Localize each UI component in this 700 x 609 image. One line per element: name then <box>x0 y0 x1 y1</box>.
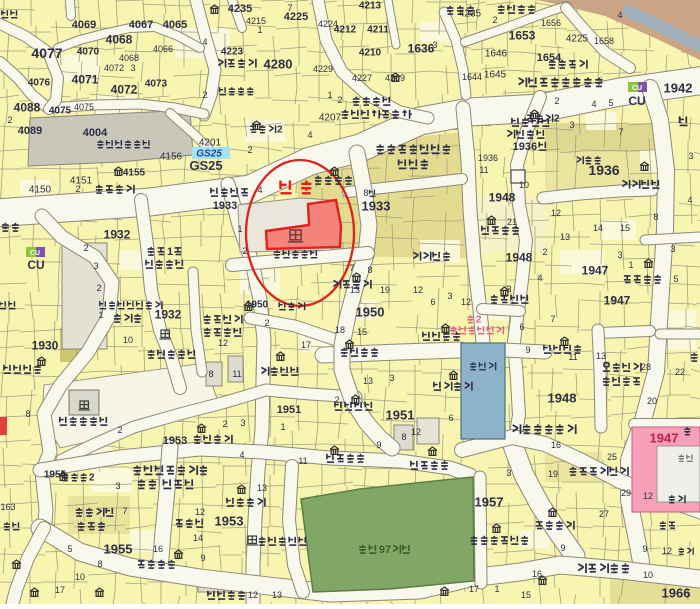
svg-text:4: 4 <box>591 99 596 109</box>
svg-text:6: 6 <box>430 297 435 307</box>
svg-text:6: 6 <box>448 413 453 423</box>
svg-text:13: 13 <box>272 590 282 600</box>
svg-text:1948: 1948 <box>506 250 533 264</box>
svg-text:13: 13 <box>350 285 360 295</box>
svg-text:15: 15 <box>357 327 367 337</box>
svg-text:8: 8 <box>97 559 102 569</box>
svg-text:2: 2 <box>542 247 547 257</box>
svg-text:1: 1 <box>98 310 103 320</box>
svg-text:3: 3 <box>688 151 693 161</box>
svg-text:4068: 4068 <box>119 53 139 63</box>
svg-text:9: 9 <box>200 553 205 563</box>
svg-text:4073: 4073 <box>145 79 168 90</box>
svg-text:9: 9 <box>376 440 381 450</box>
svg-text:1947: 1947 <box>604 293 631 307</box>
svg-text:CU: CU <box>30 250 40 257</box>
svg-text:12: 12 <box>248 590 258 600</box>
svg-text:3: 3 <box>447 291 452 301</box>
svg-text:2: 2 <box>264 318 269 328</box>
svg-text:7: 7 <box>618 127 623 137</box>
svg-text:17: 17 <box>55 585 65 595</box>
svg-text:4213: 4213 <box>359 1 382 12</box>
svg-text:4068: 4068 <box>106 32 133 46</box>
svg-text:1932: 1932 <box>104 227 131 241</box>
svg-text:1950: 1950 <box>356 305 385 320</box>
svg-text:4066: 4066 <box>153 44 173 54</box>
svg-text:1966: 1966 <box>662 586 691 601</box>
svg-text:12: 12 <box>643 491 653 501</box>
svg-text:2: 2 <box>247 145 252 155</box>
svg-text:10: 10 <box>75 572 85 582</box>
svg-text:1947: 1947 <box>582 263 609 277</box>
svg-text:12: 12 <box>461 297 471 307</box>
svg-text:19: 19 <box>548 469 558 479</box>
svg-text:18: 18 <box>335 325 345 335</box>
svg-text:4076: 4076 <box>28 78 51 89</box>
svg-text:12: 12 <box>195 507 205 517</box>
svg-text:12: 12 <box>551 208 561 218</box>
svg-text:11: 11 <box>568 352 577 362</box>
svg-text:12: 12 <box>413 285 423 295</box>
svg-text:1656: 1656 <box>541 18 561 28</box>
svg-text:1953: 1953 <box>163 435 187 447</box>
svg-text:1951: 1951 <box>277 404 301 416</box>
svg-text:1948: 1948 <box>489 190 516 204</box>
svg-text:27: 27 <box>599 509 609 519</box>
svg-text:4067: 4067 <box>129 19 153 31</box>
svg-text:4: 4 <box>307 130 312 140</box>
svg-text:3: 3 <box>506 468 511 478</box>
svg-text:2: 2 <box>277 125 283 136</box>
svg-text:4: 4 <box>687 195 692 205</box>
svg-text:1: 1 <box>280 422 285 432</box>
svg-text:GS25: GS25 <box>189 158 222 173</box>
svg-text:2: 2 <box>202 90 207 100</box>
svg-text:4: 4 <box>537 273 542 283</box>
svg-text:16: 16 <box>153 544 163 554</box>
svg-text:4: 4 <box>239 450 244 460</box>
svg-text:4150: 4150 <box>29 185 52 196</box>
svg-text:4071: 4071 <box>72 72 99 86</box>
svg-text:4075: 4075 <box>49 106 72 117</box>
svg-text:4227: 4227 <box>352 73 372 83</box>
svg-text:22: 22 <box>675 367 685 377</box>
svg-text:8: 8 <box>653 212 658 222</box>
svg-text:1644: 1644 <box>462 72 482 82</box>
svg-text:3: 3 <box>130 63 135 73</box>
svg-text:1653: 1653 <box>509 28 536 42</box>
svg-text:1: 1 <box>237 224 242 234</box>
svg-text:1951: 1951 <box>386 408 415 423</box>
svg-text:1: 1 <box>677 115 682 125</box>
svg-text:1: 1 <box>257 25 262 35</box>
svg-text:11: 11 <box>479 165 488 175</box>
svg-text:6: 6 <box>519 322 524 332</box>
svg-text:4155: 4155 <box>123 168 146 179</box>
svg-text:17: 17 <box>301 340 311 350</box>
svg-text:1: 1 <box>167 246 173 258</box>
svg-text:14: 14 <box>593 223 603 233</box>
svg-text:12: 12 <box>411 427 421 437</box>
svg-text:3: 3 <box>389 373 394 383</box>
svg-text:4201: 4201 <box>199 138 222 149</box>
svg-text:4211: 4211 <box>367 25 389 36</box>
svg-text:2: 2 <box>7 115 12 125</box>
svg-text:8: 8 <box>363 188 368 198</box>
svg-text:8: 8 <box>367 265 372 275</box>
svg-text:4072: 4072 <box>104 63 124 73</box>
svg-text:4: 4 <box>617 10 622 20</box>
svg-text:4224: 4224 <box>318 19 338 29</box>
svg-text:4089: 4089 <box>18 125 42 137</box>
svg-text:1646: 1646 <box>485 49 508 60</box>
svg-text:4210: 4210 <box>359 48 382 59</box>
svg-text:97: 97 <box>379 544 391 556</box>
svg-text:3: 3 <box>240 418 245 428</box>
svg-text:3: 3 <box>93 261 98 271</box>
svg-text:13: 13 <box>596 351 606 361</box>
svg-text:4077: 4077 <box>31 45 62 61</box>
svg-text:4065: 4065 <box>163 19 187 31</box>
svg-text:1658: 1658 <box>594 36 614 46</box>
svg-text:13: 13 <box>363 376 373 386</box>
svg-text:9: 9 <box>525 345 530 355</box>
svg-text:20: 20 <box>647 396 657 406</box>
svg-text:1645: 1645 <box>484 70 507 81</box>
svg-text:7: 7 <box>287 3 292 13</box>
svg-text:2: 2 <box>222 419 227 429</box>
svg-text:1936: 1936 <box>478 153 498 163</box>
svg-text:11: 11 <box>232 369 241 379</box>
svg-text:2: 2 <box>554 96 559 106</box>
svg-text:8: 8 <box>208 369 213 379</box>
svg-text:1: 1 <box>494 584 499 594</box>
svg-text:1933: 1933 <box>362 199 391 214</box>
svg-text:14: 14 <box>193 533 203 543</box>
svg-text:4207: 4207 <box>319 113 342 124</box>
svg-text:1936: 1936 <box>588 162 619 178</box>
svg-text:4: 4 <box>202 37 207 47</box>
svg-text:4229: 4229 <box>313 64 333 74</box>
svg-text:CU: CU <box>632 85 642 92</box>
svg-text:16: 16 <box>551 440 561 450</box>
svg-text:3: 3 <box>617 250 622 260</box>
svg-text:2: 2 <box>96 283 101 293</box>
svg-text:3: 3 <box>569 120 574 130</box>
svg-text:8: 8 <box>401 432 406 442</box>
svg-text:12: 12 <box>218 338 228 348</box>
svg-text:4223: 4223 <box>221 47 244 58</box>
svg-text:1957: 1957 <box>475 495 504 510</box>
svg-text:4075: 4075 <box>74 102 94 112</box>
svg-text:1: 1 <box>327 90 332 100</box>
svg-text:7: 7 <box>122 506 127 516</box>
svg-text:1932: 1932 <box>155 307 182 321</box>
svg-text:4088: 4088 <box>14 100 41 114</box>
svg-text:1948: 1948 <box>548 391 577 406</box>
svg-text:1933: 1933 <box>213 200 237 212</box>
svg-text:21: 21 <box>507 217 517 227</box>
svg-text:1947: 1947 <box>650 431 679 446</box>
svg-text:10: 10 <box>643 570 653 580</box>
svg-text:19: 19 <box>380 285 390 295</box>
svg-text:4156: 4156 <box>160 152 183 163</box>
svg-text:29: 29 <box>621 488 631 498</box>
svg-text:12: 12 <box>662 546 672 556</box>
svg-text:17: 17 <box>469 584 479 594</box>
svg-text:4070: 4070 <box>77 47 100 58</box>
svg-text:2: 2 <box>337 95 342 105</box>
svg-text:4215: 4215 <box>246 16 266 26</box>
svg-text:1953: 1953 <box>215 514 244 529</box>
svg-text:3: 3 <box>115 481 120 491</box>
svg-text:3: 3 <box>670 244 675 254</box>
svg-text:1636: 1636 <box>408 41 435 55</box>
svg-text:7: 7 <box>550 314 555 324</box>
svg-text:15: 15 <box>620 223 630 233</box>
svg-text:3: 3 <box>432 40 437 50</box>
svg-text:10: 10 <box>519 180 529 190</box>
svg-text:4072: 4072 <box>111 82 138 96</box>
svg-text:4: 4 <box>257 185 262 195</box>
svg-text:13: 13 <box>257 483 267 493</box>
svg-text:5: 5 <box>608 98 613 108</box>
svg-text:CU: CU <box>27 258 44 272</box>
svg-text:2: 2 <box>83 243 88 253</box>
svg-text:1936: 1936 <box>513 141 537 153</box>
svg-text:163: 163 <box>0 502 15 512</box>
svg-text:25: 25 <box>607 452 617 462</box>
svg-text:4280: 4280 <box>264 57 293 72</box>
svg-text:4151: 4151 <box>70 176 93 187</box>
svg-text:9: 9 <box>560 543 565 553</box>
svg-text:9: 9 <box>642 544 647 554</box>
svg-text:2: 2 <box>117 425 122 435</box>
svg-text:4235: 4235 <box>228 3 252 15</box>
svg-text:2: 2 <box>89 473 95 484</box>
svg-text:4225: 4225 <box>566 34 589 45</box>
svg-text:1955: 1955 <box>104 542 133 557</box>
svg-text:2: 2 <box>476 315 482 326</box>
svg-text:15: 15 <box>521 590 531 600</box>
svg-text:4069: 4069 <box>72 19 96 31</box>
svg-text:7: 7 <box>349 263 354 273</box>
svg-text:2: 2 <box>242 246 247 256</box>
svg-text:2: 2 <box>554 114 560 125</box>
svg-text:1930: 1930 <box>32 338 59 352</box>
svg-text:10: 10 <box>123 335 133 345</box>
svg-text:13: 13 <box>560 232 570 242</box>
svg-text:2: 2 <box>492 15 497 25</box>
svg-text:1942: 1942 <box>664 81 693 96</box>
svg-text:4004: 4004 <box>83 127 108 139</box>
svg-text:8: 8 <box>25 409 30 419</box>
svg-text:5: 5 <box>673 274 678 284</box>
svg-text:11: 11 <box>298 456 307 466</box>
svg-text:1: 1 <box>628 260 633 270</box>
svg-text:CU: CU <box>628 94 645 108</box>
svg-text:28: 28 <box>641 362 651 372</box>
svg-text:5: 5 <box>67 544 72 554</box>
